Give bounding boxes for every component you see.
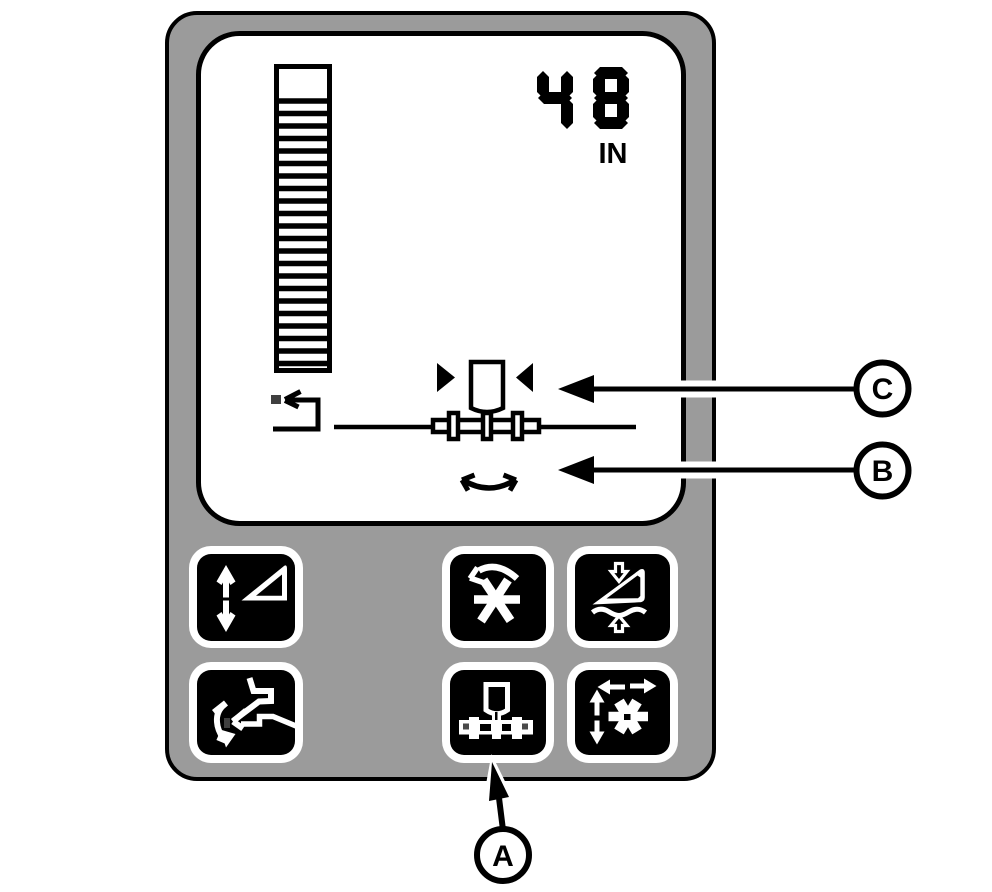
svg-text:C: C (872, 373, 894, 406)
svg-text:A: A (492, 840, 514, 873)
svg-text:IN: IN (599, 138, 628, 170)
svg-text:B: B (872, 455, 894, 488)
